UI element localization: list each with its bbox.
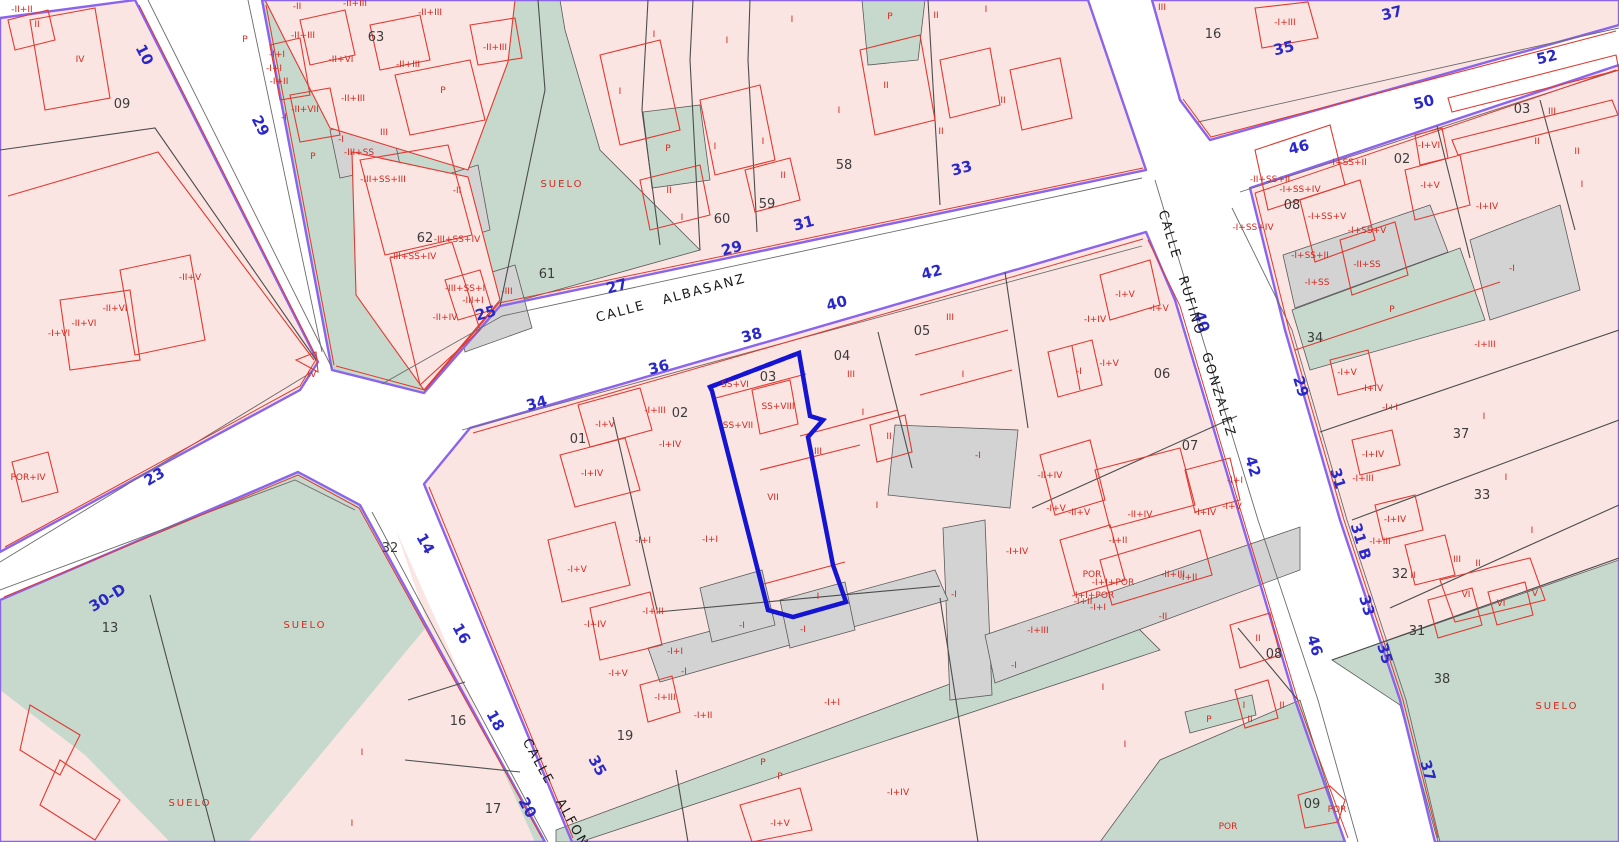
- building-height-label: P: [887, 12, 893, 22]
- parcel-number-label[interactable]: 02: [1394, 152, 1411, 167]
- parcel-number-label[interactable]: 07: [1182, 439, 1199, 454]
- building-height-label: III: [1453, 555, 1461, 565]
- building-height-label: -I+SS+II: [1329, 158, 1367, 168]
- building-height-label: -I+IV: [1361, 384, 1384, 394]
- building-height-label: -I+V: [1420, 181, 1440, 191]
- building-height-label: -II+II: [11, 5, 32, 15]
- building-height-label: -I: [951, 590, 957, 600]
- parcel-number-label[interactable]: 08: [1284, 198, 1301, 213]
- building-height-label: I: [653, 30, 656, 40]
- building-height-label: -I+III: [1027, 626, 1048, 636]
- building-height-label: -I: [975, 451, 981, 461]
- building-height-label: I: [862, 408, 865, 418]
- building-height-label: -II: [453, 186, 462, 196]
- building-height-label: -I: [1011, 661, 1017, 671]
- parcel-number-label[interactable]: 62: [417, 231, 434, 246]
- building-height-label: -I+V: [1046, 504, 1066, 514]
- building-height-label: -I+IV: [584, 620, 607, 630]
- building-height-label: SUELO: [168, 798, 211, 809]
- building-height-label: III: [847, 370, 855, 380]
- building-height-label: -II+SS+II: [1250, 175, 1290, 185]
- street-number-label: 29: [248, 112, 274, 139]
- building-height-label: POR: [1328, 805, 1347, 815]
- building-height-label: II: [1279, 701, 1284, 711]
- building-height-label: -I+I: [635, 536, 651, 546]
- building-height-label: -I+I: [1382, 403, 1398, 413]
- building-height-label: -I+I: [1227, 476, 1243, 486]
- building-height-label: -I+IV: [1362, 450, 1385, 460]
- building-height-label: -II+VI: [103, 304, 128, 314]
- parcel-number-label[interactable]: 01: [570, 432, 587, 447]
- building-height-label: I: [619, 87, 622, 97]
- building-height-label: -I: [1076, 367, 1082, 377]
- building-height-label: III: [1548, 107, 1556, 117]
- building-height-label: I: [1581, 180, 1584, 190]
- building-height-label: I: [876, 501, 879, 511]
- building-height-label: P: [665, 144, 671, 154]
- building-height-label: I: [817, 592, 820, 602]
- parcel-number-label[interactable]: 16: [450, 714, 467, 729]
- building-height-label: -I+III: [1352, 474, 1373, 484]
- building-height-label: -I+II: [1179, 573, 1198, 583]
- building-height-label: -I+V: [1222, 502, 1242, 512]
- parcel-number-label[interactable]: 03: [1514, 102, 1531, 117]
- building-height-label: -II+IV: [433, 313, 459, 323]
- building-height-label: -I+SS+IV: [1232, 223, 1274, 233]
- building-height-label: -I+IV: [887, 788, 910, 798]
- gray-parcel: [888, 425, 1018, 508]
- building-height-label: P: [777, 772, 783, 782]
- parcel-number-label[interactable]: 63: [368, 30, 385, 45]
- building-height-label: -II+V: [179, 273, 202, 283]
- building-height-label: IV: [76, 55, 86, 65]
- building-height-label: -II+III: [291, 31, 315, 41]
- building-height-label: -I+I: [269, 50, 285, 60]
- street-number-label: 40: [824, 292, 849, 315]
- building-height-label: II: [1574, 147, 1579, 157]
- parcel-number-label[interactable]: 34: [1307, 331, 1324, 346]
- building-height-label: II: [933, 11, 938, 21]
- building-height-label: -I+II: [1109, 536, 1128, 546]
- street-number-label: 50: [1411, 91, 1436, 114]
- building-height-label: -I+SS+V: [1308, 212, 1347, 222]
- building-height-label: -I+I: [1090, 603, 1106, 613]
- building-height-label: -I+II: [270, 77, 289, 87]
- street-number-label: 18: [482, 707, 508, 734]
- building-height-label: -I+V: [1337, 368, 1357, 378]
- building-height-label: -II+VII: [291, 105, 319, 115]
- building-height-label: -II+SS: [1353, 260, 1381, 270]
- building-height-label: II: [1410, 571, 1415, 581]
- building-height-label: -I+V: [1149, 304, 1169, 314]
- building-height-label: I: [681, 213, 684, 223]
- building-height-label: -I+IV: [1084, 315, 1107, 325]
- building-height-label: VI: [1497, 599, 1506, 609]
- parcel-number-label[interactable]: 16: [1205, 27, 1222, 42]
- parcel-number-label[interactable]: 06: [1154, 367, 1171, 382]
- building-height-label: -III+SS: [344, 148, 374, 158]
- suelo-parcel: [862, 0, 925, 65]
- building-height-label: II: [938, 127, 943, 137]
- building-height-label: -I+SS: [1305, 278, 1330, 288]
- building-height-label: -II+III: [341, 94, 365, 104]
- building-height-label: -I+I: [702, 535, 718, 545]
- parcel-number-label[interactable]: 17: [485, 802, 502, 817]
- building-height-label: I: [1243, 701, 1246, 711]
- building-height-label: -I+I: [667, 647, 683, 657]
- building-height-label: III: [946, 313, 954, 323]
- building-height-label: -II+III: [483, 43, 507, 53]
- building-height-label: -I+II: [694, 711, 713, 721]
- building-height-label: I: [1505, 473, 1508, 483]
- building-height-label: II: [886, 432, 891, 442]
- building-height-label: -III+SS+IV: [390, 252, 437, 262]
- building-height-label: VII: [767, 493, 778, 503]
- building-height-label: P: [242, 35, 248, 45]
- building-height-label: -II: [293, 2, 302, 12]
- gray-parcel: [943, 520, 992, 700]
- building-height-label: I: [1102, 683, 1105, 693]
- parcel-number-label[interactable]: 32: [1392, 567, 1409, 582]
- building-height-label: I: [962, 370, 965, 380]
- building-height-label: -I+IV: [1384, 515, 1407, 525]
- building-height-label: P: [440, 86, 446, 96]
- street-number-label: 14: [412, 530, 438, 557]
- building-height-label: -III+SS+I: [445, 284, 485, 294]
- building-height-label: III: [380, 128, 388, 138]
- building-height-label: P: [760, 758, 766, 768]
- building-height-label: -I+III: [1369, 537, 1390, 547]
- building-height-label: -II+IV: [1038, 471, 1064, 481]
- street-number-label: 46: [1303, 633, 1326, 658]
- building-height-label: II: [1475, 559, 1480, 569]
- parcel-number-label[interactable]: 19: [617, 729, 634, 744]
- building-height-label: -I+IV: [1194, 508, 1217, 518]
- building-height-label: I: [1483, 412, 1486, 422]
- building-height-label: P: [310, 152, 316, 162]
- building-height-label: -III: [501, 287, 512, 297]
- building-height-label: -I: [800, 625, 806, 635]
- building-height-label: I: [726, 36, 729, 46]
- building-height-label: IV: [308, 370, 318, 380]
- building-height-label: -I+SS+V: [1348, 226, 1387, 236]
- building-height-label: I: [361, 748, 364, 758]
- building-height-label: -I+V: [770, 819, 790, 829]
- building-height-label: -I+VI: [1418, 141, 1440, 151]
- parcel-number-label[interactable]: 37: [1453, 427, 1470, 442]
- building-height-label: -II+III: [418, 8, 442, 18]
- parcel-number-label[interactable]: 09: [1304, 797, 1321, 812]
- building-height-label: -I+IV: [581, 469, 604, 479]
- building-height-label: II: [34, 20, 39, 30]
- parcel-number-label[interactable]: 03: [760, 370, 777, 385]
- parcel-number-label[interactable]: 13: [102, 621, 119, 636]
- parcel-number-label[interactable]: 33: [1474, 488, 1491, 503]
- street-number-label: 16: [448, 620, 474, 647]
- building-height-label: -I+III: [1274, 18, 1295, 28]
- building-height-label: SUELO: [283, 620, 326, 631]
- building-height-label: I: [985, 5, 988, 15]
- building-height-label: -I+VI: [48, 329, 70, 339]
- building-height-label: -I: [281, 113, 287, 123]
- building-height-label: I: [762, 137, 765, 147]
- building-height-label: III: [814, 447, 822, 457]
- parcel-number-label[interactable]: 38: [1434, 672, 1451, 687]
- building-height-label: II: [666, 186, 671, 196]
- building-height-label: II: [1247, 715, 1252, 725]
- parcel-number-label[interactable]: 59: [759, 197, 776, 212]
- parcel-number-label[interactable]: 04: [834, 349, 851, 364]
- parcel-number-label[interactable]: 58: [836, 158, 853, 173]
- parcel-number-label[interactable]: 31: [1409, 624, 1426, 639]
- building-height-label: -I: [681, 667, 687, 677]
- building-height-label: -I: [1509, 264, 1515, 274]
- building-height-label: V: [1532, 589, 1539, 599]
- building-height-label: I: [791, 15, 794, 25]
- building-height-label: -I: [739, 621, 745, 631]
- building-height-label: -I+V: [595, 420, 615, 430]
- building-height-label: SUELO: [540, 179, 583, 190]
- street-number-label: 46: [1286, 136, 1311, 159]
- building-height-label: -I+IV: [1006, 547, 1029, 557]
- building-height-label: -II+VI: [72, 319, 97, 329]
- building-height-label: I: [351, 819, 354, 829]
- building-height-label: -I+V: [567, 565, 587, 575]
- building-height-label: -I+IV: [659, 440, 682, 450]
- parcel-number-label[interactable]: 60: [714, 212, 731, 227]
- building-height-label: II: [1000, 96, 1005, 106]
- building-height-label: -I+V: [608, 669, 628, 679]
- parcel-number-label[interactable]: 61: [539, 267, 556, 282]
- building-height-label: VI: [1462, 590, 1471, 600]
- building-height-label: P: [1206, 715, 1212, 725]
- building-height-label: P: [1389, 305, 1395, 315]
- building-height-label: -I+SS+II: [1291, 251, 1329, 261]
- parcel-number-label[interactable]: 32: [382, 541, 399, 556]
- building-height-label: -I+III: [1474, 340, 1495, 350]
- building-height-label: -I+V: [1115, 290, 1135, 300]
- building-height-label: -II+IV: [1128, 510, 1154, 520]
- building-height-label: -I+III: [654, 693, 675, 703]
- building-height-label: I: [1124, 740, 1127, 750]
- building-height-label: -I: [338, 135, 344, 145]
- building-height-label: -I+III: [642, 607, 663, 617]
- building-height-label: I: [1531, 526, 1534, 536]
- parcel-number-label[interactable]: 02: [672, 406, 689, 421]
- building-height-label: SS+VIII: [761, 402, 794, 412]
- building-height-label: -II: [1159, 612, 1168, 622]
- building-height-label: II: [883, 81, 888, 91]
- building-height-label: SS+VI: [721, 380, 749, 390]
- parcel-number-label[interactable]: 05: [914, 324, 931, 339]
- building-height-label: -II+VI: [329, 55, 354, 65]
- building-height-label: -I+I: [824, 698, 840, 708]
- building-height-label: I: [714, 142, 717, 152]
- building-height-label: -I+I: [266, 64, 282, 74]
- building-height-label: SUELO: [1535, 701, 1578, 712]
- cadastral-map-viewport[interactable]: -II+IIIIIV-II+V-II+VI-II+VI-I+VIIVP-II-I…: [0, 0, 1619, 842]
- building-height-label: SS+VII: [723, 421, 753, 431]
- building-height-label: -I+IV: [1476, 202, 1499, 212]
- building-height-label: POR+IV: [10, 473, 46, 483]
- building-height-label: II: [1255, 634, 1260, 644]
- building-height-label: -III+SS+IV: [434, 235, 481, 245]
- building-height-label: -I+SS+IV: [1279, 185, 1321, 195]
- building-height-label: -I+I+POR: [1092, 578, 1134, 588]
- parcel-number-label[interactable]: 08: [1266, 647, 1283, 662]
- suelo-parcel: [643, 105, 710, 188]
- building-height-label: -III+SS+III: [360, 175, 406, 185]
- parcel-number-label[interactable]: 09: [114, 97, 131, 112]
- building-height-label: -II+III: [396, 60, 420, 70]
- building-height-label: -I+III: [644, 406, 665, 416]
- building-height-label: -II+III: [343, 0, 367, 9]
- street-number-label: 42: [919, 261, 944, 284]
- building-height-label: I: [838, 106, 841, 116]
- building-height-label: POR: [1219, 822, 1238, 832]
- building-height-label: II: [780, 171, 785, 181]
- building-height-label: -I+V: [1099, 359, 1119, 369]
- building-height-label: III: [1158, 3, 1166, 13]
- cadastral-map[interactable]: -II+IIIIIV-II+V-II+VI-II+VI-I+VIIVP-II-I…: [0, 0, 1619, 842]
- building-height-label: -II+V: [1068, 508, 1091, 518]
- building-height-label: II: [1534, 137, 1539, 147]
- street-number-label: 52: [1534, 46, 1559, 69]
